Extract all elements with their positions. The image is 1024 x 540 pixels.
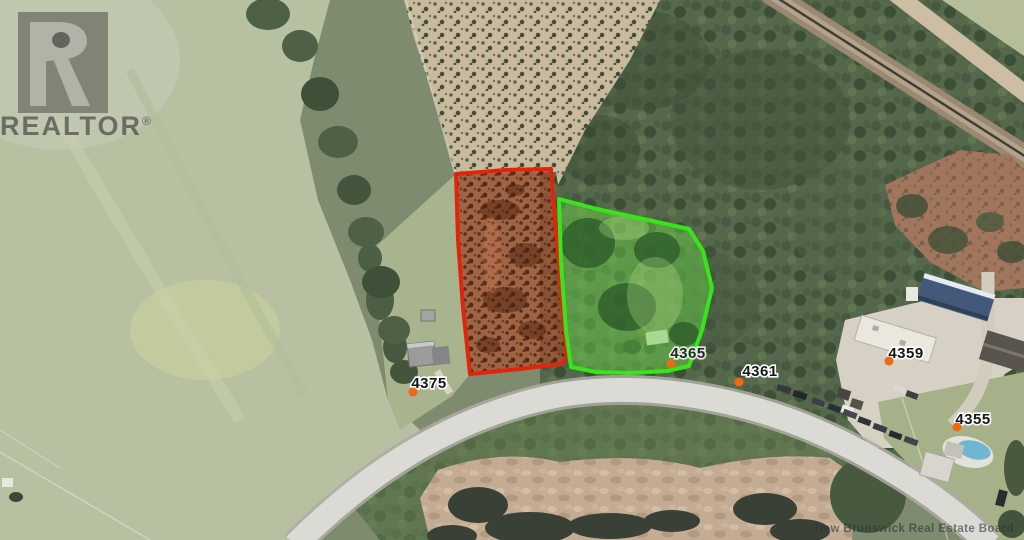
address-dot — [409, 388, 418, 397]
small-outbuilding — [2, 478, 13, 487]
map-canvas: 4375 4365 4361 4359 4355 — [0, 0, 1024, 540]
address-label: 4361 — [742, 363, 777, 380]
address-label: 4365 — [670, 345, 705, 362]
address-dot — [667, 360, 676, 369]
board-watermark: New Brunswick Real Estate Board — [815, 523, 1014, 535]
shed-4375 — [421, 310, 435, 321]
address-label: 4359 — [888, 345, 923, 362]
parcel-subject-lot — [456, 169, 567, 374]
aerial-map-screenshot: 4375 4365 4361 4359 4355 REALTOR® New — [0, 0, 1024, 540]
address-dot — [885, 357, 894, 366]
address-dot — [953, 423, 962, 432]
address-dot — [735, 378, 744, 387]
